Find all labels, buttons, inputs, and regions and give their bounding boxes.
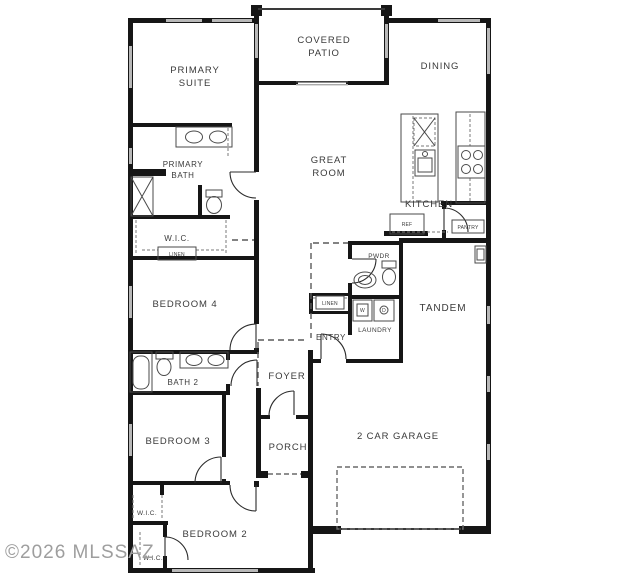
mls-watermark: ©2026 MLSSAZ: [5, 542, 155, 564]
label-garage: 2 CAR GARAGE: [357, 431, 439, 442]
label-pwdr: PWDR: [368, 253, 389, 260]
bath2-vanity: [180, 352, 228, 368]
kitchen-counter: [456, 112, 485, 203]
label-bath2: BATH 2: [167, 378, 198, 387]
primary-vanity: [176, 127, 232, 147]
label-wic-hall: W.I.C.: [137, 510, 157, 517]
toilet: [156, 352, 173, 376]
label-ref: REF: [402, 222, 413, 228]
label-great-room-2: ROOM: [312, 168, 345, 179]
room-transitions: [232, 240, 348, 474]
label-primary-bath: PRIMARY: [163, 160, 204, 169]
label-covered-patio-2: PATIO: [308, 48, 340, 59]
toilet: [206, 190, 222, 214]
cooktop: [458, 146, 485, 178]
label-linen-primary: LINEN: [169, 252, 185, 258]
sink: [186, 355, 202, 366]
pwdr-sink: [354, 272, 376, 288]
label-foyer: FOYER: [268, 371, 305, 382]
label-primary-suite: PRIMARY: [170, 65, 219, 76]
bathtub: [130, 352, 152, 392]
label-covered-patio: COVERED: [297, 35, 350, 46]
label-dining: DINING: [421, 61, 460, 72]
label-tandem: TANDEM: [420, 303, 467, 314]
walls: [128, 5, 491, 573]
floor-plan-page: PRIMARY SUITE COVERED PATIO DINING PRIMA…: [0, 0, 617, 582]
sink: [210, 131, 227, 143]
label-primary-suite-2: SUITE: [179, 78, 211, 89]
label-bedroom4: BEDROOM 4: [152, 299, 217, 310]
floor-plan-drawing: PRIMARY SUITE COVERED PATIO DINING PRIMA…: [0, 0, 617, 582]
label-washer: W: [360, 308, 365, 314]
doors: [165, 172, 468, 560]
sink: [208, 355, 224, 366]
label-porch: PORCH: [269, 442, 308, 453]
label-linen-hall: LINEN: [322, 301, 338, 307]
label-primary-bath-2: BATH: [171, 171, 194, 180]
label-wic-primary: W.I.C.: [164, 234, 189, 243]
label-laundry: LAUNDRY: [358, 327, 392, 334]
garage-door-dashed: [337, 467, 463, 529]
label-pantry: PANTRY: [457, 225, 478, 231]
kitchen-island: [401, 114, 438, 202]
label-bedroom2: BEDROOM 2: [182, 529, 247, 540]
shower: [131, 177, 153, 216]
water-heater: [475, 246, 486, 263]
toilet: [382, 261, 396, 285]
label-kitchen: KITCHEN: [405, 199, 453, 210]
label-great-room: GREAT: [311, 155, 348, 166]
label-dryer: D: [382, 308, 386, 314]
sink: [186, 131, 203, 143]
label-entry: ENTRY: [316, 333, 346, 342]
label-bedroom3: BEDROOM 3: [145, 436, 210, 447]
